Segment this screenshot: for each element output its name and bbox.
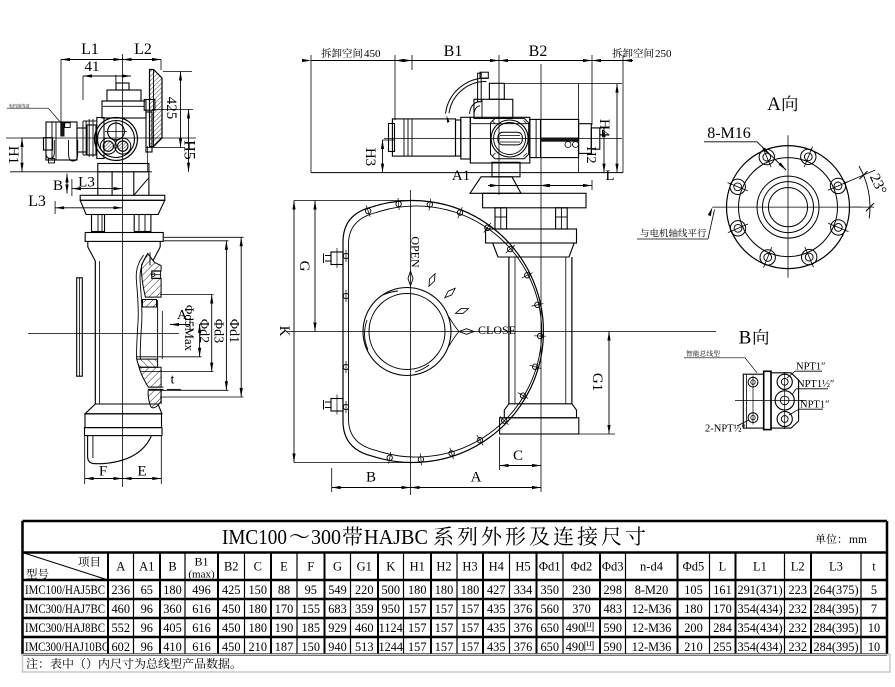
svg-text:HAJBC: HAJBC [364, 525, 428, 549]
svg-text:236: 236 [112, 583, 130, 597]
svg-text:370: 370 [572, 602, 590, 616]
svg-text:232: 232 [789, 640, 807, 654]
svg-text:157: 157 [435, 640, 453, 654]
svg-text:284(395): 284(395) [813, 602, 858, 616]
svg-text:284(395): 284(395) [813, 621, 858, 635]
svg-text:170: 170 [275, 602, 293, 616]
svg-text:IMC300/HAJ10BC: IMC300/HAJ10BC [25, 640, 109, 654]
svg-text:G: G [296, 261, 312, 272]
svg-text:B2: B2 [529, 43, 548, 60]
svg-text:H1: H1 [410, 560, 425, 574]
svg-text:B1: B1 [444, 43, 463, 60]
svg-text:560: 560 [541, 602, 559, 616]
svg-text:C: C [513, 448, 523, 464]
svg-text:602: 602 [112, 640, 130, 654]
svg-text:Φd5: Φd5 [683, 560, 705, 574]
svg-text:300: 300 [311, 525, 341, 549]
svg-text:K: K [386, 560, 395, 574]
svg-text:(max): (max) [188, 569, 215, 581]
svg-text:950: 950 [382, 602, 400, 616]
svg-text:359: 359 [355, 602, 373, 616]
svg-text:157: 157 [461, 640, 479, 654]
svg-text:354(434): 354(434) [737, 621, 782, 635]
svg-text:IMC100: IMC100 [222, 525, 287, 549]
svg-text:284(395): 284(395) [813, 640, 858, 654]
svg-text:F: F [307, 560, 314, 574]
svg-text:L1: L1 [753, 560, 767, 574]
svg-text:Φd2: Φd2 [196, 319, 211, 343]
svg-text:180: 180 [461, 583, 479, 597]
svg-text:L3: L3 [829, 560, 843, 574]
svg-text:A: A [767, 94, 781, 115]
svg-text:616: 616 [192, 602, 210, 616]
svg-text:450: 450 [222, 602, 240, 616]
svg-text:435: 435 [487, 640, 505, 654]
svg-text:Φd2: Φd2 [571, 560, 593, 574]
svg-text:H1: H1 [5, 146, 21, 164]
svg-text:95: 95 [305, 583, 317, 597]
svg-text:L: L [605, 168, 614, 184]
svg-text:435: 435 [487, 602, 505, 616]
svg-text:185: 185 [302, 621, 320, 635]
svg-text:10: 10 [868, 640, 880, 654]
svg-text:CLOSE: CLOSE [478, 323, 516, 337]
svg-text:180: 180 [435, 583, 453, 597]
svg-text:460: 460 [355, 621, 373, 635]
svg-text:180: 180 [249, 602, 267, 616]
svg-text:2-NPT½″: 2-NPT½″ [705, 424, 746, 435]
svg-text:460: 460 [112, 602, 130, 616]
svg-text:425: 425 [222, 583, 240, 597]
svg-text:200: 200 [684, 621, 702, 635]
svg-text:Φd3: Φd3 [210, 319, 225, 343]
svg-text:190: 190 [275, 621, 293, 635]
svg-text:L: L [719, 560, 727, 574]
svg-text:255: 255 [713, 640, 731, 654]
svg-text:450: 450 [222, 640, 240, 654]
svg-text:L2: L2 [134, 41, 152, 58]
svg-text:230: 230 [572, 583, 590, 597]
svg-text:F: F [99, 464, 107, 480]
svg-text:41: 41 [85, 59, 100, 75]
svg-text:12-M36: 12-M36 [632, 602, 672, 616]
svg-text:350: 350 [541, 583, 559, 597]
svg-text:513: 513 [355, 640, 373, 654]
svg-text:435: 435 [487, 621, 505, 635]
svg-text:284: 284 [713, 621, 731, 635]
svg-text:12-M36: 12-M36 [632, 621, 672, 635]
svg-text:210: 210 [249, 640, 267, 654]
svg-text:E: E [137, 464, 146, 480]
svg-text:157: 157 [461, 621, 479, 635]
svg-text:10: 10 [868, 621, 880, 635]
svg-text:88: 88 [278, 583, 290, 597]
svg-text:A: A [116, 560, 125, 574]
svg-text:264(375): 264(375) [813, 583, 858, 597]
svg-text:G: G [333, 560, 342, 574]
svg-text:161: 161 [713, 583, 731, 597]
svg-text:B: B [168, 560, 176, 574]
svg-text:NPT1½″: NPT1½″ [797, 379, 834, 390]
svg-text:L2: L2 [791, 560, 805, 574]
svg-text:410: 410 [163, 640, 181, 654]
svg-text:590: 590 [604, 621, 622, 635]
svg-text:180: 180 [684, 602, 702, 616]
svg-text:C: C [254, 560, 262, 574]
svg-text:A1: A1 [452, 168, 470, 184]
svg-text:180: 180 [408, 583, 426, 597]
svg-text:7: 7 [871, 602, 877, 616]
svg-text:549: 549 [328, 583, 346, 597]
svg-text:H5: H5 [181, 140, 198, 160]
svg-text:496: 496 [192, 583, 210, 597]
svg-text:157: 157 [408, 640, 426, 654]
svg-text:G1: G1 [357, 560, 372, 574]
svg-text:H5: H5 [515, 560, 530, 574]
svg-text:334: 334 [514, 583, 532, 597]
svg-text:929: 929 [328, 621, 346, 635]
svg-text:Φd3: Φd3 [602, 560, 624, 574]
svg-text:12-M36: 12-M36 [632, 640, 672, 654]
svg-text:Φd1: Φd1 [226, 319, 241, 343]
svg-text:1244: 1244 [378, 640, 403, 654]
svg-text:L3: L3 [28, 193, 46, 210]
svg-text:8-M16: 8-M16 [707, 125, 751, 142]
svg-text:155: 155 [302, 602, 320, 616]
svg-text:940: 940 [328, 640, 346, 654]
svg-text:180: 180 [163, 583, 181, 597]
svg-text:450: 450 [222, 621, 240, 635]
svg-text:157: 157 [408, 621, 426, 635]
svg-text:96: 96 [141, 621, 153, 635]
svg-text:616: 616 [192, 621, 210, 635]
svg-text:A: A [471, 470, 482, 486]
svg-text:IMC100/HAJ5BC: IMC100/HAJ5BC [25, 583, 105, 597]
svg-text:590: 590 [604, 640, 622, 654]
svg-text:5: 5 [871, 583, 877, 597]
svg-text:425: 425 [163, 97, 179, 120]
svg-text:360: 360 [163, 602, 181, 616]
svg-text:96: 96 [141, 640, 153, 654]
svg-text:210: 210 [684, 640, 702, 654]
svg-text:157: 157 [461, 602, 479, 616]
svg-text:298: 298 [604, 583, 622, 597]
svg-text:427: 427 [487, 583, 505, 597]
svg-text:G1: G1 [589, 373, 605, 391]
svg-text:552: 552 [112, 621, 130, 635]
svg-text:A: A [177, 308, 188, 323]
svg-text:K: K [276, 326, 292, 337]
svg-text:616: 616 [192, 640, 210, 654]
svg-text:180: 180 [249, 621, 267, 635]
svg-text:157: 157 [435, 621, 453, 635]
svg-text:376: 376 [514, 621, 532, 635]
svg-text:683: 683 [328, 602, 346, 616]
svg-text:450: 450 [364, 48, 381, 60]
svg-text:Φd1: Φd1 [539, 560, 561, 574]
svg-text:65: 65 [141, 583, 153, 597]
svg-text:IMC300/HAJ7BC: IMC300/HAJ7BC [25, 602, 105, 616]
svg-text:IMC300/HAJ8BC: IMC300/HAJ8BC [25, 621, 105, 635]
svg-text:B: B [53, 178, 63, 194]
svg-text:H3: H3 [462, 560, 477, 574]
svg-text:n-d4: n-d4 [640, 560, 664, 574]
svg-text:1124: 1124 [379, 621, 403, 635]
svg-text:157: 157 [408, 602, 426, 616]
svg-text:500: 500 [382, 583, 400, 597]
svg-text:376: 376 [514, 640, 532, 654]
svg-text:L1: L1 [81, 41, 99, 58]
svg-text:OPEN: OPEN [408, 236, 422, 268]
svg-text:t: t [872, 560, 876, 574]
svg-text:250: 250 [655, 48, 672, 60]
svg-text:232: 232 [789, 602, 807, 616]
svg-text:mm: mm [849, 534, 867, 546]
svg-text:187: 187 [275, 640, 293, 654]
svg-text:B2: B2 [224, 560, 239, 574]
svg-text:405: 405 [163, 621, 181, 635]
svg-text:650: 650 [541, 640, 559, 654]
svg-text:H3: H3 [362, 148, 378, 166]
svg-text:96: 96 [141, 602, 153, 616]
svg-text:150: 150 [302, 640, 320, 654]
svg-text:490: 490 [566, 621, 584, 635]
svg-text:B: B [739, 328, 752, 349]
svg-text:A1: A1 [139, 560, 154, 574]
svg-text:B: B [366, 470, 376, 486]
svg-text:150: 150 [249, 583, 267, 597]
svg-text:223: 223 [789, 583, 807, 597]
svg-text:105: 105 [684, 583, 702, 597]
svg-text:H2: H2 [583, 146, 598, 163]
svg-text:291(371): 291(371) [737, 583, 782, 597]
svg-text:157: 157 [435, 602, 453, 616]
svg-text:8-M20: 8-M20 [635, 583, 668, 597]
svg-text:650: 650 [541, 621, 559, 635]
svg-text:H2: H2 [436, 560, 451, 574]
svg-text:E: E [280, 560, 288, 574]
svg-text:376: 376 [514, 602, 532, 616]
svg-text:B1: B1 [194, 555, 208, 569]
svg-text:170: 170 [713, 602, 731, 616]
svg-text:354(434): 354(434) [737, 640, 782, 654]
svg-text:H4: H4 [489, 560, 505, 574]
svg-text:354(434): 354(434) [737, 602, 782, 616]
svg-text:483: 483 [604, 602, 622, 616]
svg-text:490: 490 [566, 640, 584, 654]
svg-text:232: 232 [789, 621, 807, 635]
svg-text:220: 220 [355, 583, 373, 597]
svg-text:t: t [171, 373, 175, 388]
